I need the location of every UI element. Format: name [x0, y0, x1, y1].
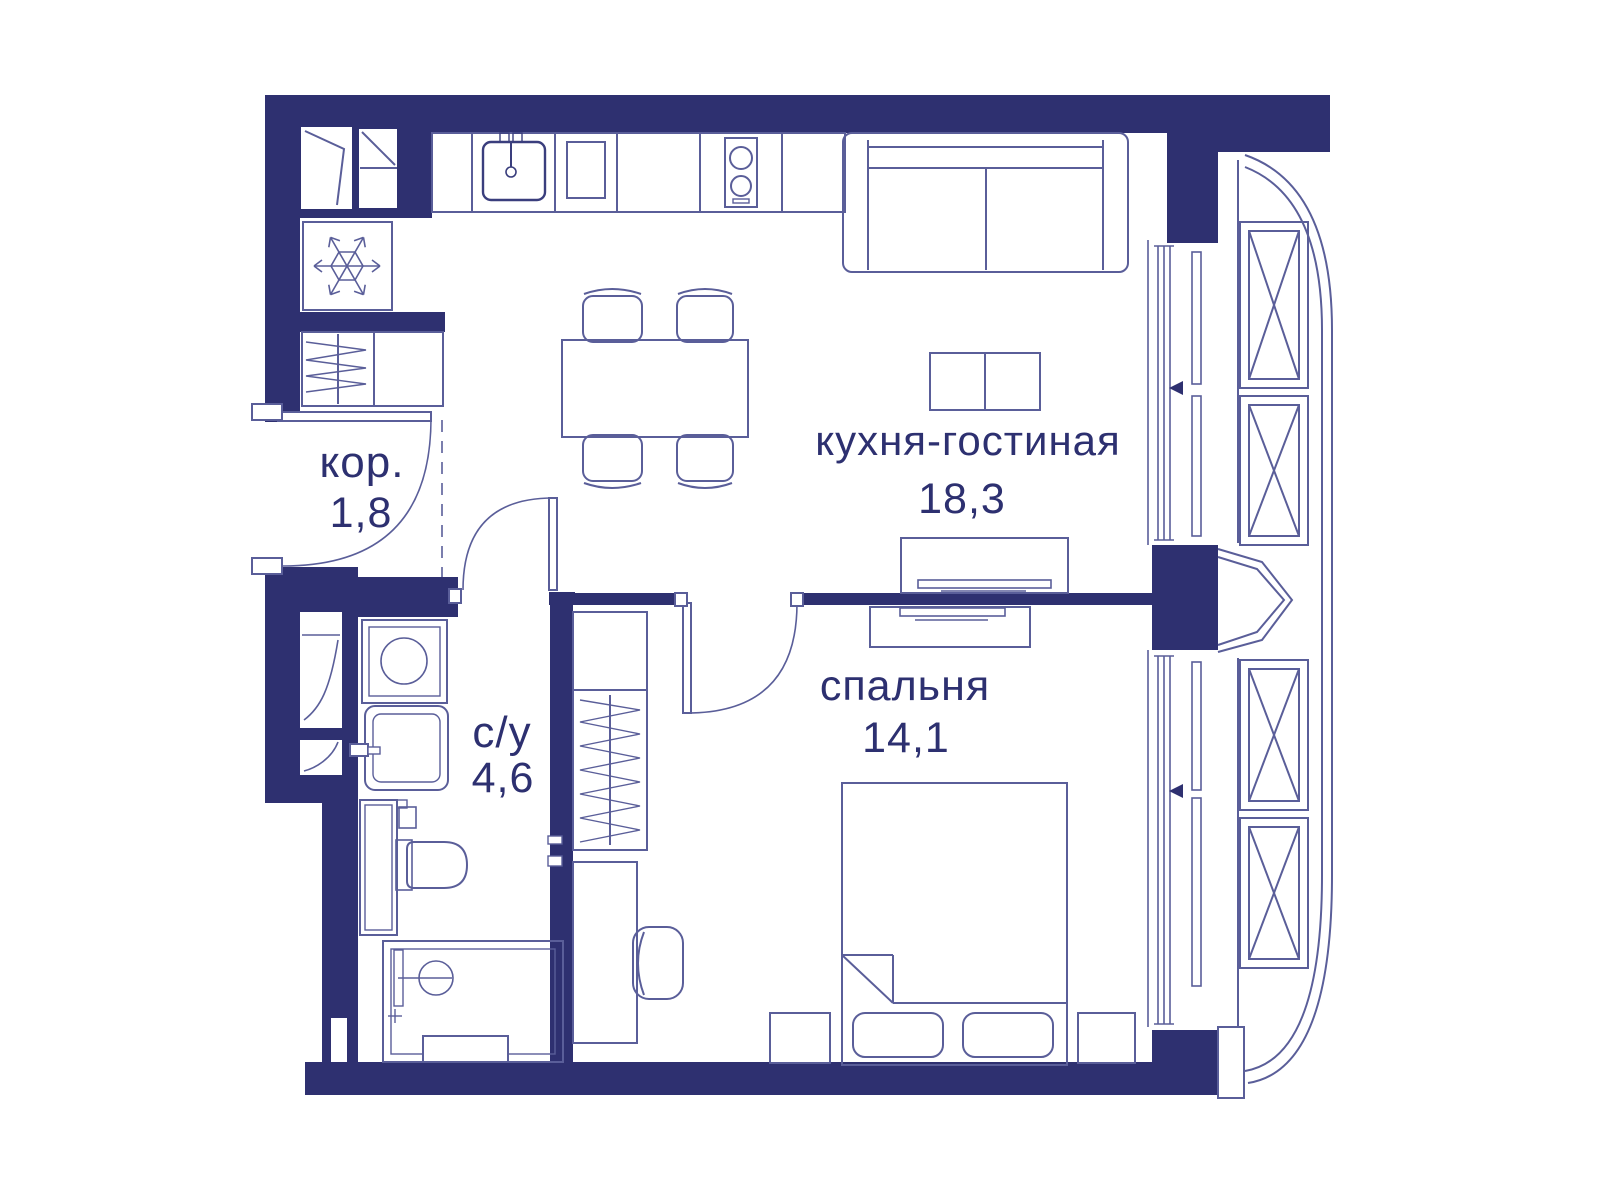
corridor-wardrobe-niche — [300, 332, 445, 406]
nightstand-left — [770, 1013, 830, 1063]
desk — [573, 862, 637, 1043]
wall-pier-top — [1167, 95, 1218, 243]
room-area-kitchen-living: 18,3 — [918, 475, 1006, 523]
pillow — [963, 1013, 1053, 1057]
shower-entry — [423, 1036, 508, 1062]
wall-bottom-right-step — [1152, 1030, 1218, 1095]
entrance-door-jamb-bottom — [252, 558, 282, 574]
wall-corridor-bottom — [265, 577, 458, 617]
wall-strip-under-fridge — [300, 312, 445, 332]
kitchen-sink — [483, 133, 545, 200]
wall-bottom — [305, 1062, 1218, 1095]
bathroom-door-leaf — [549, 498, 557, 590]
wall-room-divider-right — [797, 593, 1152, 605]
fridge-zone — [300, 218, 432, 312]
bedroom-window — [1148, 650, 1201, 1027]
room-area-bathroom: 4,6 — [472, 754, 535, 802]
bedroom-door-jamb-right — [791, 593, 803, 606]
tv-stand-living — [901, 538, 1068, 593]
entry-closet-niche-1 — [301, 127, 352, 209]
dining-chair — [583, 289, 642, 342]
balcony-bay-chevron — [1218, 549, 1292, 652]
desk-chair — [633, 927, 683, 999]
pillow — [853, 1013, 943, 1057]
wall-bath-bedroom-partition — [550, 592, 573, 1065]
vanity-cabinet — [360, 800, 397, 935]
room-area-bedroom: 14,1 — [862, 714, 950, 762]
balcony-panel-2 — [1240, 396, 1308, 545]
bed — [842, 783, 1067, 1065]
wall-left-upper — [265, 95, 300, 422]
balcony-panel-3 — [1240, 660, 1308, 810]
window-sill-bottom-right — [1218, 1027, 1244, 1098]
room-label-bathroom: с/у — [472, 708, 531, 757]
bathroom-zone — [350, 620, 563, 1062]
sofa — [843, 133, 1128, 272]
balcony-panel-4 — [1240, 818, 1308, 968]
window-opening-arrow-icon — [1169, 381, 1183, 395]
towel-peg — [548, 836, 562, 844]
entrance-door-jamb-top — [252, 404, 282, 420]
washing-machine — [362, 620, 447, 703]
dining-table — [562, 340, 748, 437]
towel-peg — [548, 856, 562, 866]
bathroom-door-swing — [463, 498, 553, 590]
window-opening-arrow-icon — [1169, 784, 1183, 798]
wall-room-divider-left — [573, 593, 687, 605]
dining-chair — [677, 435, 733, 488]
shower — [383, 941, 563, 1062]
utility-shaft-1 — [300, 612, 342, 728]
entrance-door-leaf — [278, 412, 431, 421]
balcony-outer-wall-inner-line — [1245, 167, 1322, 1071]
floor-plan-drawing: кухня-гостиная 18,3 спальня 14,1 кор. 1,… — [0, 0, 1600, 1200]
balcony-panel-1 — [1240, 222, 1308, 388]
nightstand-right — [1078, 1013, 1135, 1063]
bedroom-door-jamb-left — [675, 593, 687, 606]
room-label-bedroom: спальня — [820, 662, 990, 710]
dining-chair — [583, 435, 642, 488]
balcony — [1218, 155, 1332, 1098]
wall-pier-middle — [1152, 545, 1218, 650]
toilet — [396, 800, 467, 890]
room-label-kitchen-living: кухня-гостиная — [815, 417, 1121, 464]
wall-slot — [331, 1018, 347, 1062]
tv-stand-bedroom — [870, 607, 1030, 647]
kitchen-window — [1148, 240, 1201, 545]
room-area-corridor: 1,8 — [330, 489, 393, 537]
bedroom-door-swing — [687, 603, 797, 713]
cutting-board — [567, 142, 605, 198]
bathroom-door-jamb — [449, 589, 461, 603]
room-label-corridor: кор. — [320, 438, 405, 487]
dining-chair — [677, 289, 733, 342]
bedroom-wardrobe — [573, 612, 647, 850]
floor-plan: кухня-гостиная 18,3 спальня 14,1 кор. 1,… — [0, 0, 1600, 1200]
cooktop — [725, 138, 757, 207]
bedroom-door-leaf — [683, 603, 691, 713]
coffee-table — [930, 353, 1040, 410]
bathroom-sink — [350, 706, 448, 790]
